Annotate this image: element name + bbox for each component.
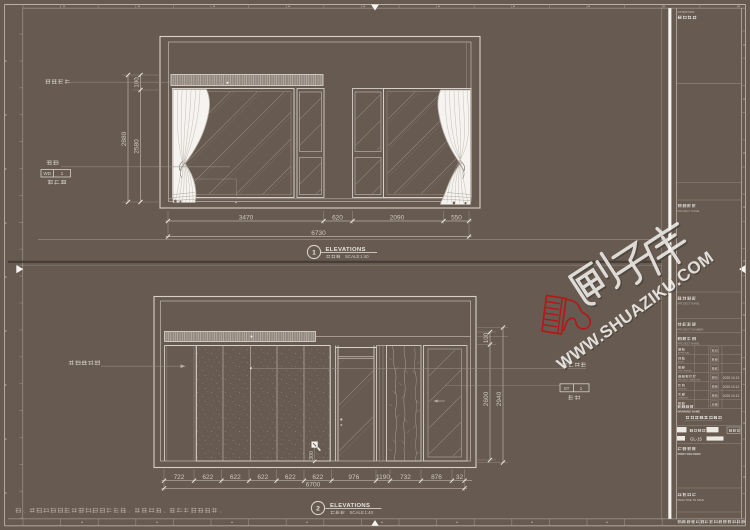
svg-text:620: 620 bbox=[332, 214, 343, 221]
svg-text:2600: 2600 bbox=[483, 391, 490, 406]
svg-text:PROJECT NAME: PROJECT NAME bbox=[678, 342, 700, 346]
svg-text:2: 2 bbox=[316, 505, 320, 512]
svg-text:2020.10.12: 2020.10.12 bbox=[723, 394, 740, 398]
svg-text:1:40: 1:40 bbox=[365, 510, 374, 515]
svg-text:300: 300 bbox=[309, 451, 315, 460]
svg-text:100: 100 bbox=[483, 332, 490, 343]
svg-text:722: 722 bbox=[174, 474, 185, 481]
svg-text:WD: WD bbox=[43, 171, 51, 176]
svg-text:PROJECT NUMBER: PROJECT NUMBER bbox=[678, 327, 704, 331]
svg-text:PRACTICE TO SIGN: PRACTICE TO SIGN bbox=[678, 498, 704, 502]
svg-text:2580: 2580 bbox=[133, 139, 140, 154]
svg-text:1190: 1190 bbox=[376, 474, 390, 481]
svg-text:622: 622 bbox=[257, 474, 268, 481]
svg-text:1: 1 bbox=[61, 171, 64, 177]
svg-text:ST: ST bbox=[564, 386, 570, 391]
svg-text:2020.10.12: 2020.10.12 bbox=[723, 385, 740, 389]
svg-text:32: 32 bbox=[456, 474, 464, 481]
svg-text:DRAWING NAME: DRAWING NAME bbox=[678, 409, 701, 413]
svg-text:876: 876 bbox=[431, 474, 442, 481]
svg-text:PRINT RECORDS: PRINT RECORDS bbox=[678, 452, 701, 456]
svg-text:2090: 2090 bbox=[390, 214, 405, 221]
svg-text:ELEVATIONS: ELEVATIONS bbox=[326, 247, 366, 253]
svg-text:PROJECT NAME: PROJECT NAME bbox=[678, 301, 700, 305]
svg-text:1: 1 bbox=[580, 386, 583, 392]
svg-text:1: 1 bbox=[312, 249, 316, 256]
svg-text:3470: 3470 bbox=[239, 214, 254, 221]
svg-text:550: 550 bbox=[451, 214, 462, 221]
svg-text:732: 732 bbox=[400, 474, 411, 481]
svg-text:6730: 6730 bbox=[311, 230, 326, 237]
svg-text:2880: 2880 bbox=[121, 131, 128, 146]
svg-text:SCALE: SCALE bbox=[345, 254, 359, 259]
svg-text:GL-15: GL-15 bbox=[690, 436, 703, 441]
svg-text:6700: 6700 bbox=[306, 482, 321, 489]
svg-text:976: 976 bbox=[348, 474, 359, 481]
svg-text:2020.10.12: 2020.10.12 bbox=[723, 376, 740, 380]
svg-text:622: 622 bbox=[285, 474, 296, 481]
svg-text:ATTENTION: ATTENTION bbox=[678, 10, 695, 14]
svg-text:1:40: 1:40 bbox=[360, 254, 369, 259]
svg-text:ELEVATIONS: ELEVATIONS bbox=[330, 503, 370, 509]
svg-text:622: 622 bbox=[312, 474, 323, 481]
svg-text:2940: 2940 bbox=[496, 391, 503, 406]
svg-text:622: 622 bbox=[230, 474, 241, 481]
svg-text:PROJECT NAME: PROJECT NAME bbox=[678, 209, 700, 213]
svg-text:622: 622 bbox=[202, 474, 213, 481]
svg-text:SCALE: SCALE bbox=[350, 510, 364, 515]
